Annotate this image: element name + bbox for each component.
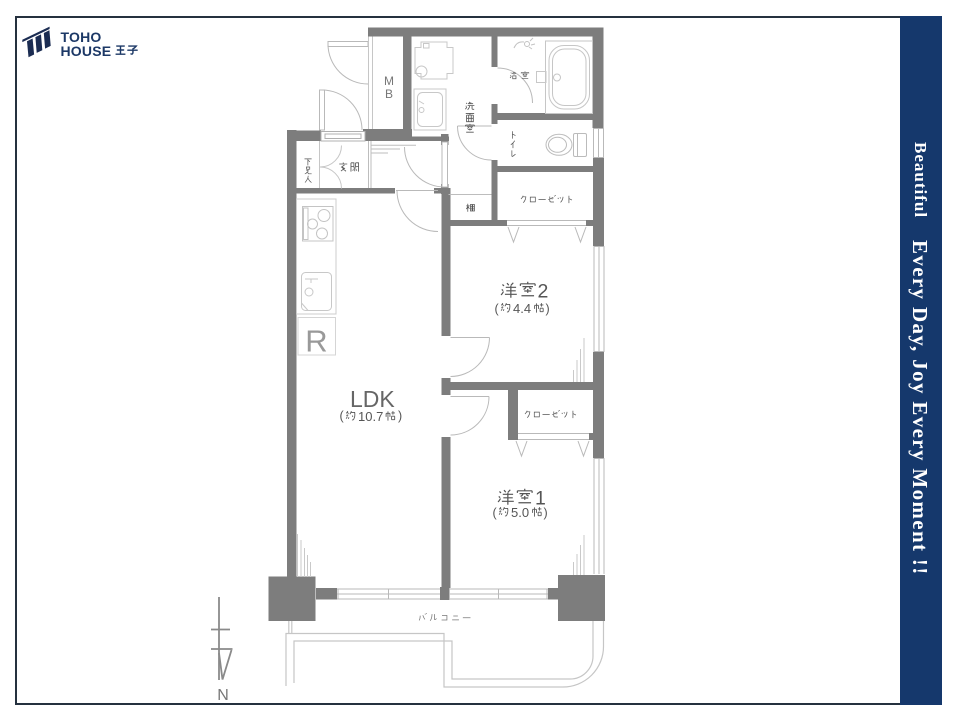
svg-text:): ) xyxy=(546,302,550,316)
svg-text:Every Day, Joy Every Moment !!: Every Day, Joy Every Moment !! xyxy=(908,240,932,576)
svg-text:N: N xyxy=(217,687,229,704)
svg-text:2: 2 xyxy=(538,281,549,303)
svg-text:HOUSE: HOUSE xyxy=(61,43,112,59)
svg-text:R: R xyxy=(305,324,327,359)
svg-text:4.4: 4.4 xyxy=(513,301,531,316)
svg-text:B: B xyxy=(385,87,393,101)
svg-text:Beautiful: Beautiful xyxy=(911,142,930,218)
svg-text:5.0: 5.0 xyxy=(511,505,529,520)
svg-text:): ) xyxy=(398,409,402,423)
svg-text:10.7: 10.7 xyxy=(358,409,383,424)
svg-text:M: M xyxy=(384,74,394,88)
svg-text:): ) xyxy=(544,506,548,520)
